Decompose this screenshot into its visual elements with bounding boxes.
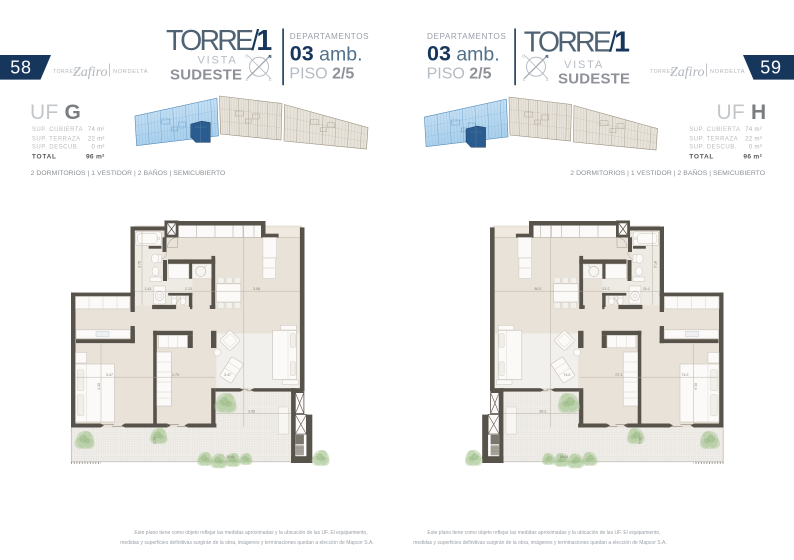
- svg-text:SUP. CUBIERTA: SUP. CUBIERTA: [689, 127, 740, 133]
- svg-text:74 m²: 74 m²: [88, 127, 105, 133]
- svg-text:2 DORMITORIOS | 1 VESTIDOR | 2: 2 DORMITORIOS | 1 VESTIDOR | 2 BAÑOS | S…: [570, 168, 765, 177]
- svg-text:59: 59: [760, 58, 782, 78]
- svg-text:TORRE/1: TORRE/1: [166, 25, 272, 57]
- svg-text:Zafiro: Zafiro: [670, 65, 705, 80]
- svg-text:UF H: UF H: [717, 101, 767, 124]
- svg-text:SUDESTE: SUDESTE: [170, 67, 242, 84]
- svg-text:3.08: 3.08: [248, 410, 255, 414]
- svg-text:NORDELTA: NORDELTA: [113, 69, 148, 75]
- svg-text:VISTA: VISTA: [198, 54, 238, 66]
- svg-text:TOTAL: TOTAL: [689, 153, 714, 160]
- svg-text:medidas y superficies definiti: medidas y superficies definitivas surgir…: [413, 540, 666, 546]
- svg-text:03 amb.: 03 amb.: [290, 42, 363, 66]
- svg-text:E: E: [269, 77, 272, 82]
- svg-text:PISO 2/5: PISO 2/5: [289, 66, 354, 83]
- svg-text:medidas y superficies definiti: medidas y superficies definitivas surgir…: [120, 540, 373, 546]
- svg-text:Este plano tiene como objeto r: Este plano tiene como objeto reflejar la…: [134, 530, 367, 536]
- svg-text:SUP. DESCUB.: SUP. DESCUB.: [32, 145, 80, 151]
- svg-text:Zafiro: Zafiro: [73, 65, 108, 80]
- svg-text:SUP. CUBIERTA: SUP. CUBIERTA: [32, 127, 83, 133]
- svg-text:DEPARTAMENTOS: DEPARTAMENTOS: [427, 32, 506, 41]
- svg-text:3.08: 3.08: [253, 287, 260, 291]
- svg-text:N: N: [546, 54, 549, 59]
- svg-text:3.47: 3.47: [224, 373, 231, 377]
- svg-text:Este plano tiene como objeto r: Este plano tiene como objeto reflejar la…: [427, 530, 660, 536]
- svg-text:22 m²: 22 m²: [745, 136, 762, 142]
- svg-text:S: S: [523, 77, 526, 82]
- svg-text:2.38: 2.38: [152, 437, 156, 444]
- svg-text:0 m²: 0 m²: [91, 145, 104, 151]
- svg-text:03 amb.: 03 amb.: [427, 42, 500, 66]
- svg-text:16.91: 16.91: [226, 455, 235, 459]
- svg-text:2.70: 2.70: [172, 373, 179, 377]
- svg-text:E: E: [546, 77, 549, 82]
- svg-text:SUP. TERRAZA: SUP. TERRAZA: [689, 136, 738, 142]
- svg-text:N: N: [269, 54, 272, 59]
- svg-text:3.47: 3.47: [106, 373, 113, 377]
- svg-text:TOTAL: TOTAL: [32, 153, 57, 160]
- svg-text:96 m²: 96 m²: [743, 153, 762, 160]
- svg-text:NORDELTA: NORDELTA: [710, 69, 745, 75]
- svg-text:1.41: 1.41: [145, 287, 152, 291]
- svg-text:SUP. TERRAZA: SUP. TERRAZA: [32, 136, 81, 142]
- svg-text:VISTA: VISTA: [564, 59, 604, 71]
- svg-text:22 m²: 22 m²: [88, 136, 105, 142]
- svg-text:SUDESTE: SUDESTE: [558, 71, 630, 88]
- svg-text:S: S: [246, 77, 249, 82]
- svg-text:4.10: 4.10: [97, 383, 101, 390]
- svg-text:2.13: 2.13: [185, 287, 192, 291]
- svg-text:DEPARTAMENTOS: DEPARTAMENTOS: [290, 32, 369, 41]
- svg-text:74 m²: 74 m²: [745, 127, 762, 133]
- svg-text:0 m²: 0 m²: [749, 145, 762, 151]
- svg-text:3.76: 3.76: [138, 261, 142, 268]
- svg-text:2 DORMITORIOS | 1 VESTIDOR | 2: 2 DORMITORIOS | 1 VESTIDOR | 2 BAÑOS | S…: [31, 168, 226, 177]
- svg-text:UF G: UF G: [30, 101, 81, 124]
- svg-text:96 m²: 96 m²: [86, 153, 105, 160]
- svg-text:58: 58: [10, 58, 32, 78]
- svg-text:SUP. DESCUB.: SUP. DESCUB.: [689, 145, 737, 151]
- svg-text:PISO 2/5: PISO 2/5: [427, 66, 492, 83]
- svg-text:TORRE/1: TORRE/1: [524, 27, 630, 59]
